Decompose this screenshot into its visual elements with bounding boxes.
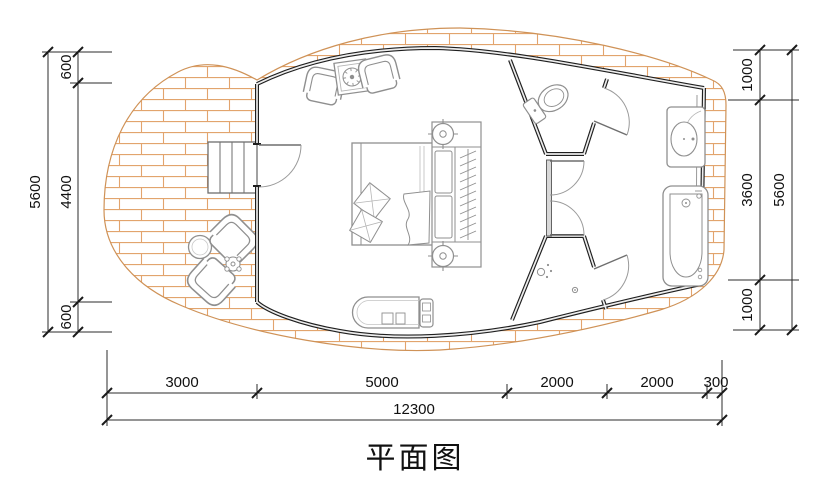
bench-chaise <box>353 297 434 328</box>
dim-left-4400: 4400 <box>58 175 75 208</box>
dim-bottom-total-12300: 12300 <box>393 401 435 418</box>
dim-bottom-3000: 3000 <box>165 374 198 391</box>
drawing-title: 平面图 <box>366 442 465 475</box>
basin-tap <box>692 138 695 141</box>
washbasin <box>667 107 705 167</box>
dim-bottom-300: 300 <box>703 374 728 391</box>
dim-bottom-2000-b: 2000 <box>640 374 673 391</box>
deck-plant-symbol <box>225 257 241 271</box>
dim-right-3600: 3600 <box>739 173 756 206</box>
dim-bottom-5000: 5000 <box>365 374 398 391</box>
dim-left-total-5600: 5600 <box>27 175 44 208</box>
headboard-wardrobe-unit <box>428 119 481 271</box>
floor-plan-drawing: 5600 600 4400 600 1000 3600 1000 5600 30… <box>0 0 837 496</box>
dim-bottom-2000-a: 2000 <box>540 374 573 391</box>
floor-plan-sheet: 5600 600 4400 600 1000 3600 1000 5600 30… <box>0 0 837 496</box>
double-bed <box>350 143 433 245</box>
dim-right-1000-bottom: 1000 <box>739 288 756 321</box>
dim-left-600-top: 600 <box>58 54 75 79</box>
deck-round-table <box>189 236 212 259</box>
entry-stairs <box>208 142 257 193</box>
nightstand-lower <box>435 196 452 238</box>
bathtub <box>663 186 708 286</box>
dim-left-600-bottom: 600 <box>58 304 75 329</box>
nightstand-upper <box>435 151 452 193</box>
dim-right-total-5600: 5600 <box>771 173 788 206</box>
dim-right-1000-top: 1000 <box>739 58 756 91</box>
